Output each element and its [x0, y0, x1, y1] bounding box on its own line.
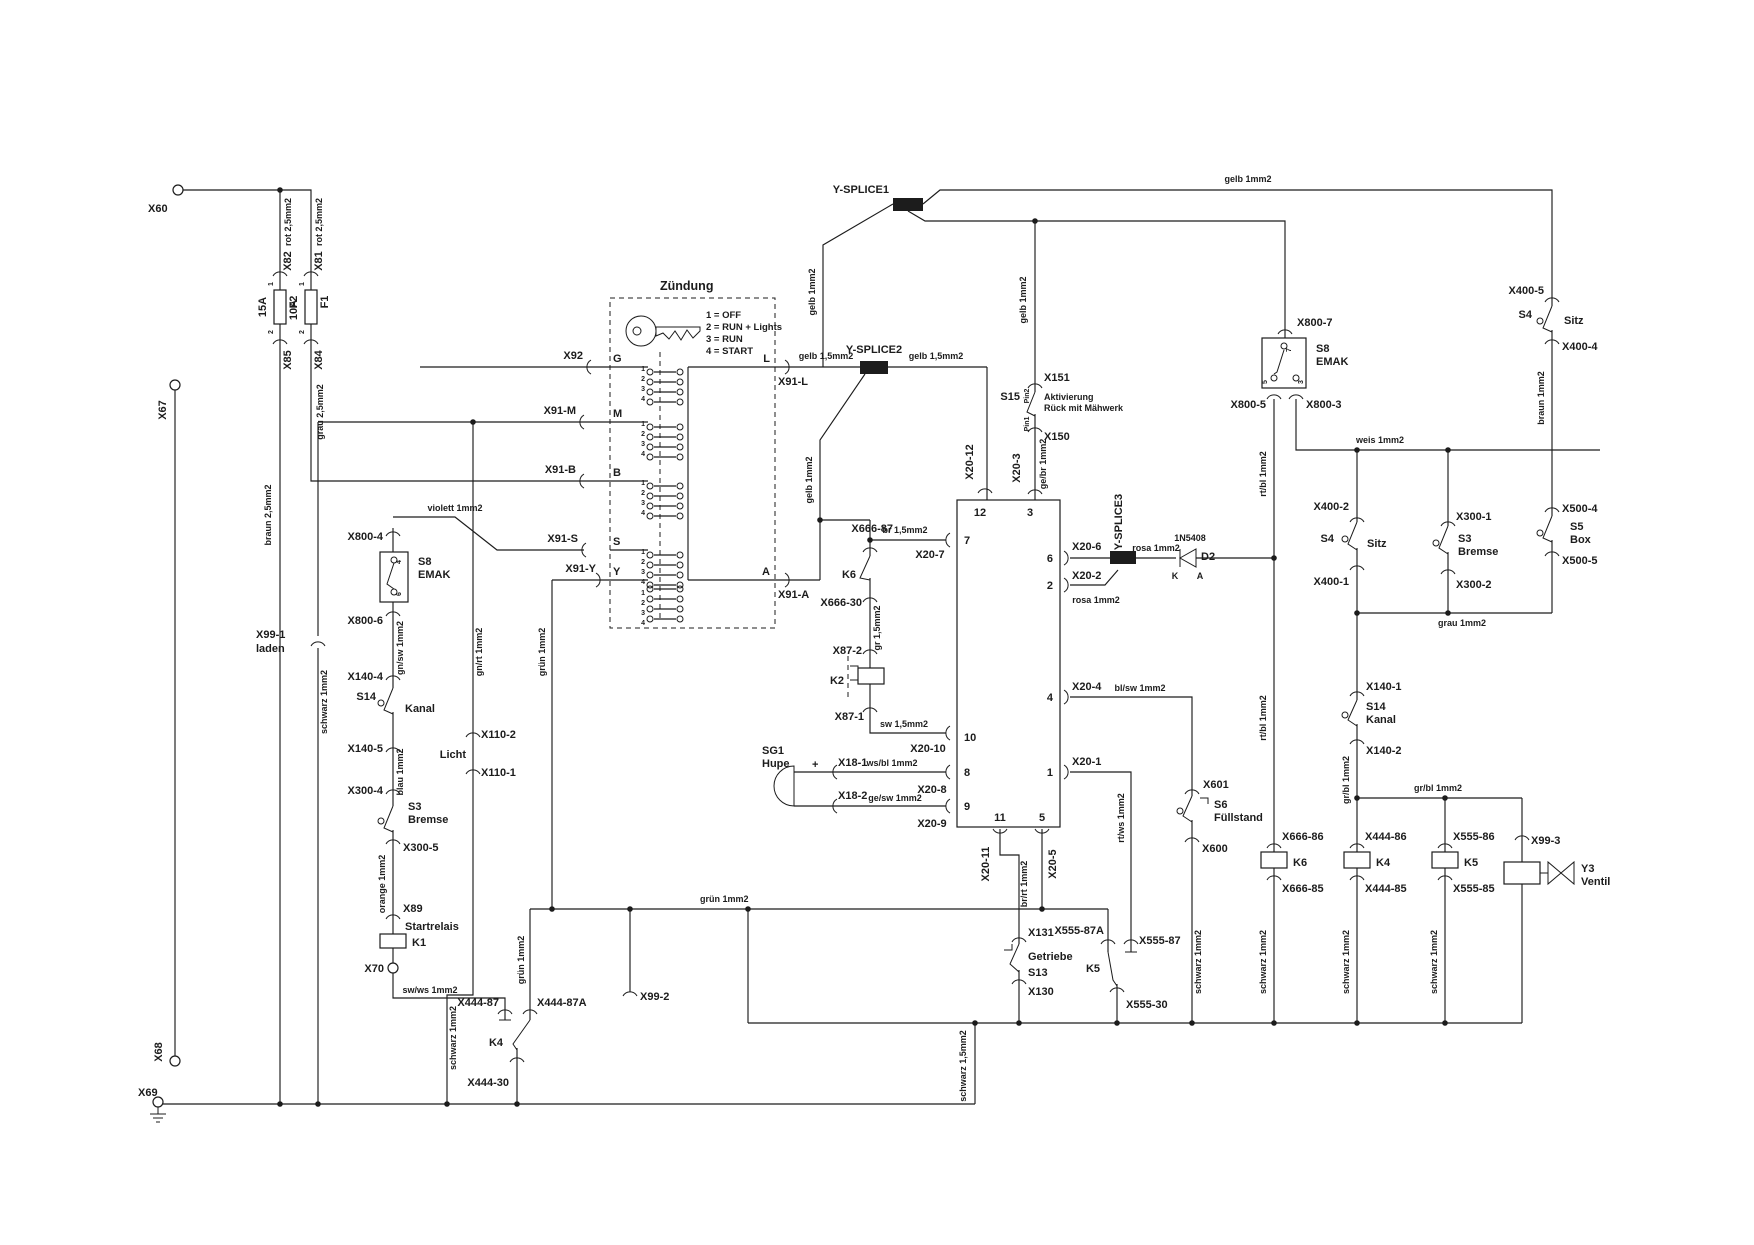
connector-label-x140-2: X140-2: [1366, 745, 1401, 757]
pin-7: 7: [964, 535, 970, 547]
connector-label-x444-86: X444-86: [1365, 831, 1407, 843]
wire-label-gesw: ge/sw 1mm2: [868, 793, 922, 803]
wire-label-blau: blau 1mm2: [395, 748, 405, 795]
connector-label-x666-86: X666-86: [1282, 831, 1324, 843]
connector-label-x300-5: X300-5: [403, 842, 438, 854]
switch-label-s5: S5: [1570, 521, 1583, 533]
connector-label-x82: X82: [282, 251, 294, 271]
switch-name-sitz-top: Sitz: [1564, 315, 1584, 327]
wire-label-gnsw: gn/sw 1mm2: [395, 621, 405, 675]
connector-label-x18-1: X18-1: [838, 757, 867, 769]
pin-label-pin2: Pin2: [1024, 389, 1031, 404]
connector-label-x110-1: X110-1: [481, 767, 516, 779]
connector-label-x300-1: X300-1: [1456, 511, 1491, 523]
connector-label-x555-86: X555-86: [1453, 831, 1495, 843]
switch-label-s4-top: S4: [1519, 309, 1533, 321]
diode-name: D2: [1201, 551, 1215, 563]
connector-label-x20-5: X20-5: [1047, 849, 1059, 878]
wire-label-grau25: grau 2,5mm2: [315, 384, 325, 440]
terminal-y: Y: [613, 566, 621, 578]
connector-label-x800-5: X800-5: [1231, 399, 1266, 411]
wire-label-blsw: bl/sw 1mm2: [1114, 683, 1165, 693]
connector-label-x555-30: X555-30: [1126, 999, 1168, 1011]
terminal-x67: [170, 380, 180, 390]
terminal-m: M: [613, 408, 622, 420]
svg-text:4: 4: [641, 396, 645, 403]
connector-label-x99-3: X99-3: [1531, 835, 1560, 847]
diode-part: 1N5408: [1174, 533, 1206, 543]
label-rueck-mit-maehwerk: Rück mit Mähwerk: [1044, 403, 1124, 413]
wire-label-gruen-87a: grün 1mm2: [516, 936, 526, 985]
wire-label-swws: sw/ws 1mm2: [402, 985, 457, 995]
connector-label-x91-s: X91-S: [547, 533, 578, 545]
wire-label-weis: weis 1mm2: [1355, 435, 1404, 445]
connector-label-x20-10: X20-10: [910, 743, 945, 755]
label-licht: Licht: [440, 749, 467, 761]
wire-label-grau1: grau 1mm2: [1438, 618, 1486, 628]
switch-name-bremse-left: Bremse: [408, 814, 448, 826]
wire-label-sw15: sw 1,5mm2: [880, 719, 928, 729]
terminal-label-x68: X68: [153, 1042, 165, 1062]
terminal-l: L: [763, 353, 770, 365]
wire-label-wsbl: ws/bl 1mm2: [865, 758, 917, 768]
switch-label-s6: S6: [1214, 799, 1227, 811]
connector-label-x20-1: X20-1: [1072, 756, 1101, 768]
svg-text:1: 1: [641, 366, 645, 373]
connector-label-x555-85: X555-85: [1453, 883, 1495, 895]
contact-label-k6: K6: [842, 569, 856, 581]
connector-label-x500-5: X500-5: [1562, 555, 1597, 567]
connector-label-x444-30: X444-30: [467, 1077, 509, 1089]
wire-label-gelb-s1left: gelb 1mm2: [807, 268, 817, 315]
fuse-f1-rating: 10A: [288, 300, 300, 320]
connector-label-x99-2: X99-2: [640, 991, 669, 1003]
pin-12: 12: [974, 507, 986, 519]
wire-label-schwarz-k5: schwarz 1mm2: [1429, 930, 1439, 994]
svg-text:3: 3: [641, 610, 645, 617]
wire-label-gruen-bus: grün 1mm2: [700, 894, 749, 904]
switch-name-kanal-right: Kanal: [1366, 714, 1396, 726]
coil-label-k5: K5: [1464, 857, 1478, 869]
wire-label-schwarz-k6: schwarz 1mm2: [1258, 930, 1268, 994]
ignition-legend-4: 4 = START: [706, 346, 753, 357]
pin-9: 9: [964, 801, 970, 813]
wire-label-braun1: braun 1mm2: [1536, 371, 1546, 425]
connector-label-x555-87: X555-87: [1139, 935, 1181, 947]
connector-label-x151: X151: [1044, 372, 1070, 384]
emak-right-name: EMAK: [1316, 356, 1348, 368]
connector-label-x20-9: X20-9: [917, 818, 946, 830]
pin-8: 8: [964, 767, 970, 779]
switch-name-kanal-left: Kanal: [405, 703, 435, 715]
connector-label-x91-y: X91-Y: [565, 563, 596, 575]
wire-label-gelb-s15: gelb 1mm2: [1018, 276, 1028, 323]
terminal-label-x69: X69: [138, 1087, 158, 1099]
wire-label-orange: orange 1mm2: [377, 855, 387, 914]
wire-label-grbl-h: gr/bl 1mm2: [1414, 783, 1462, 793]
y-splice2: [860, 361, 888, 374]
terminal-s: S: [613, 536, 620, 548]
wire-label-br15: br 1,5mm2: [882, 525, 927, 535]
wire-label-gr15: gr 1,5mm2: [872, 605, 882, 650]
wire-label-schwarz-x600: schwarz 1mm2: [1193, 930, 1203, 994]
switch-name-sitz-mid: Sitz: [1367, 538, 1387, 550]
fuse-f1-pin1: 1: [299, 282, 306, 286]
wire-label-gelb-top: gelb 1mm2: [1224, 174, 1271, 184]
ignition-title: Zündung: [660, 279, 713, 293]
svg-text:1: 1: [641, 421, 645, 428]
wire-label-gruen-v: grün 1mm2: [537, 628, 547, 677]
fuse-f2-pin1: 1: [268, 282, 275, 286]
wire-label-rtbl-lower: rt/bl 1mm2: [1258, 695, 1268, 741]
connector-label-x85: X85: [282, 350, 294, 370]
switch-label-s14-right: S14: [1366, 701, 1386, 713]
connector-label-x20-11: X20-11: [980, 847, 992, 882]
svg-text:4: 4: [641, 451, 645, 458]
svg-text:2: 2: [641, 431, 645, 438]
connector-label-x20-3: X20-3: [1011, 453, 1023, 482]
coil-label-k1: K1: [412, 937, 426, 949]
connector-label-x444-87a: X444-87A: [537, 997, 587, 1009]
pin-5: 5: [1039, 812, 1045, 824]
diode-a: A: [1197, 571, 1204, 581]
y-splice1: [893, 198, 923, 211]
wire-label-schwarz-k4: schwarz 1mm2: [1341, 930, 1351, 994]
pin-1: 1: [1047, 767, 1053, 779]
connector-label-x140-1: X140-1: [1366, 681, 1401, 693]
wire-label-gelb15-r: gelb 1,5mm2: [909, 351, 964, 361]
connector-label-x91-l: X91-L: [778, 376, 808, 388]
terminal-b: B: [613, 467, 621, 479]
connector-label-x500-4: X500-4: [1562, 503, 1598, 515]
wire-label-rot-f2: rot 2,5mm2: [283, 198, 293, 246]
pin-3: 3: [1027, 507, 1033, 519]
switch-name-bremse-right: Bremse: [1458, 546, 1498, 558]
pin-4: 4: [1047, 692, 1054, 704]
ignition-legend-3: 3 = RUN: [706, 334, 743, 345]
connector-label-x87-1: X87-1: [835, 711, 864, 723]
wire-label-gelb-a: gelb 1mm2: [804, 456, 814, 503]
label-aktivierung: Aktivierung: [1044, 392, 1094, 402]
label-y-splice1: Y-SPLICE1: [833, 184, 889, 196]
connector-label-x81: X81: [313, 251, 325, 271]
fuse-f1-pin2: 2: [299, 330, 306, 334]
connector-label-x140-4: X140-4: [348, 671, 384, 683]
fuse-f2-rating: 15A: [257, 297, 269, 317]
emak-right-s8: S8: [1316, 343, 1329, 355]
svg-text:2: 2: [641, 559, 645, 566]
wire-label-grbl-v: gr/bl 1mm2: [1341, 756, 1351, 804]
contact-label-k5: K5: [1086, 963, 1100, 975]
svg-text:3: 3: [641, 386, 645, 393]
wire-label-rosa-r: rosa 1mm2: [1132, 543, 1180, 553]
connector-label-x444-87: X444-87: [457, 997, 499, 1009]
connector-label-x400-4: X400-4: [1562, 341, 1598, 353]
valve-y3-label: Y3: [1581, 863, 1594, 875]
label-y-splice2: Y-SPLICE2: [846, 344, 902, 356]
connector-label-x20-2: X20-2: [1072, 570, 1101, 582]
connector-label-x300-2: X300-2: [1456, 579, 1491, 591]
wire-label-gnrt: gn/rt 1mm2: [474, 628, 484, 677]
svg-text:4: 4: [641, 620, 645, 627]
connector-label-x666-30: X666-30: [820, 597, 862, 609]
connector-label-x99-1: X99-1: [256, 629, 285, 641]
emak-right-pin5: 5: [1262, 380, 1269, 384]
svg-text:2: 2: [641, 600, 645, 607]
connector-label-x87-2: X87-2: [833, 645, 862, 657]
connector-label-x20-4: X20-4: [1072, 681, 1102, 693]
connector-label-x400-1: X400-1: [1314, 576, 1349, 588]
connector-label-x300-4: X300-4: [348, 785, 384, 797]
wire-label-rot-f1: rot 2,5mm2: [314, 198, 324, 246]
connector-label-x555-87a: X555-87A: [1054, 925, 1104, 937]
svg-text:2: 2: [641, 490, 645, 497]
wire-label-rtbl-upper: rt/bl 1mm2: [1258, 451, 1268, 497]
switch-label-s4-mid: S4: [1321, 533, 1335, 545]
connector-label-x18-2: X18-2: [838, 790, 867, 802]
label-y-splice3: Y-SPLICE3: [1113, 494, 1125, 550]
wiring-diagram: X60 X67 X68 X69 rot 2,5mm2 X82 1 15A F2 …: [0, 0, 1754, 1240]
fuse-f1-name: F1: [319, 296, 331, 309]
svg-text:4: 4: [641, 510, 645, 517]
contact-label-k4: K4: [489, 1037, 504, 1049]
diode-k: K: [1172, 571, 1179, 581]
switch-label-s3-left: S3: [408, 801, 421, 813]
terminal-a: A: [762, 566, 770, 578]
terminal-label-x60: X60: [148, 203, 168, 215]
emak-left-name: EMAK: [418, 569, 450, 581]
ignition-legend-1: 1 = OFF: [706, 310, 741, 321]
wire-label-schwarz-laden: schwarz 1mm2: [319, 670, 329, 734]
svg-text:1: 1: [641, 590, 645, 597]
terminal-label-x70: X70: [364, 963, 384, 975]
switch-label-s3-right: S3: [1458, 533, 1471, 545]
connector-label-x400-2: X400-2: [1314, 501, 1349, 513]
switch-name-fuellstand: Füllstand: [1214, 812, 1263, 824]
connector-label-x666-85: X666-85: [1282, 883, 1324, 895]
terminal-x68: [170, 1056, 180, 1066]
wire-label-rosa-b: rosa 1mm2: [1072, 595, 1120, 605]
svg-text:1: 1: [641, 549, 645, 556]
terminal-label-x67: X67: [157, 400, 169, 420]
connector-label-x89: X89: [403, 903, 423, 915]
label-startrelais: Startrelais: [405, 921, 459, 933]
device-label-sg1: SG1: [762, 745, 784, 757]
connector-label-x91-b: X91-B: [545, 464, 576, 476]
connector-label-x92: X92: [563, 350, 583, 362]
connector-label-x20-6: X20-6: [1072, 541, 1101, 553]
terminal-g: G: [613, 353, 622, 365]
connector-label-x600: X600: [1202, 843, 1228, 855]
connector-label-x601: X601: [1203, 779, 1229, 791]
connector-label-x400-5: X400-5: [1509, 285, 1544, 297]
wire-label-braun: braun 2,5mm2: [263, 484, 273, 545]
pin-2: 2: [1047, 580, 1053, 592]
svg-text:2: 2: [641, 376, 645, 383]
connector-label-x91-a: X91-A: [778, 589, 809, 601]
terminal-x70: [388, 963, 398, 973]
switch-label-s14-left: S14: [356, 691, 376, 703]
wire-label-rtws: rt/ws 1mm2: [1116, 793, 1126, 843]
svg-text:3: 3: [641, 500, 645, 507]
schematic-page: X60 X67 X68 X69 rot 2,5mm2 X82 1 15A F2 …: [0, 0, 1754, 1240]
wire-label-brrt: br/rt 1mm2: [1019, 861, 1029, 908]
switch-name-box: Box: [1570, 534, 1592, 546]
coil-label-k2: K2: [830, 675, 844, 687]
ignition-legend-2: 2 = RUN + Lights: [706, 322, 782, 333]
svg-text:3: 3: [641, 441, 645, 448]
connector-label-x91-m: X91-M: [544, 405, 576, 417]
emak-left-pin6: 6: [396, 592, 403, 596]
svg-text:1: 1: [641, 480, 645, 487]
wire-label-violett: violett 1mm2: [427, 503, 482, 513]
connector-label-x130: X130: [1028, 986, 1054, 998]
connector-label-x800-4: X800-4: [348, 531, 384, 543]
wire-label-schwarz15: schwarz 1,5mm2: [958, 1030, 968, 1102]
pin-11: 11: [994, 812, 1006, 824]
connector-label-x84: X84: [313, 349, 325, 369]
horn-plus: +: [812, 759, 818, 771]
coil-label-k6: K6: [1293, 857, 1307, 869]
connector-label-x110-2: X110-2: [481, 729, 516, 741]
label-getriebe: Getriebe: [1028, 951, 1073, 963]
svg-text:4: 4: [641, 579, 645, 586]
connector-label-x444-85: X444-85: [1365, 883, 1407, 895]
emak-left-pin4: 4: [396, 560, 403, 564]
valve-name: Ventil: [1581, 876, 1610, 888]
emak-right-pin3: 3: [1298, 380, 1305, 384]
switch-label-s13: S13: [1028, 967, 1048, 979]
emak-left-s8: S8: [418, 556, 431, 568]
wire-label-schwarz-licht: schwarz 1mm2: [448, 1006, 458, 1070]
pin-6: 6: [1047, 553, 1053, 565]
connector-label-x140-5: X140-5: [348, 743, 383, 755]
connector-label-x20-12: X20-12: [964, 444, 976, 479]
pin-10: 10: [964, 732, 976, 744]
connector-label-x800-6: X800-6: [348, 615, 383, 627]
connector-label-x20-7: X20-7: [915, 549, 944, 561]
svg-text:3: 3: [641, 569, 645, 576]
wire-label-gebr: ge/br 1mm2: [1038, 439, 1048, 490]
label-laden: laden: [256, 643, 285, 655]
emak-right-pin7: 7: [1286, 348, 1293, 352]
wire-label-gelb15-l: gelb 1,5mm2: [799, 351, 854, 361]
terminal-x60: [173, 185, 183, 195]
connector-label-x800-3: X800-3: [1306, 399, 1341, 411]
connector-label-x800-7: X800-7: [1297, 317, 1332, 329]
coil-label-k4: K4: [1376, 857, 1391, 869]
switch-label-s15: S15: [1000, 391, 1020, 403]
connector-label-x131: X131: [1028, 927, 1054, 939]
fuse-f2-pin2: 2: [268, 330, 275, 334]
